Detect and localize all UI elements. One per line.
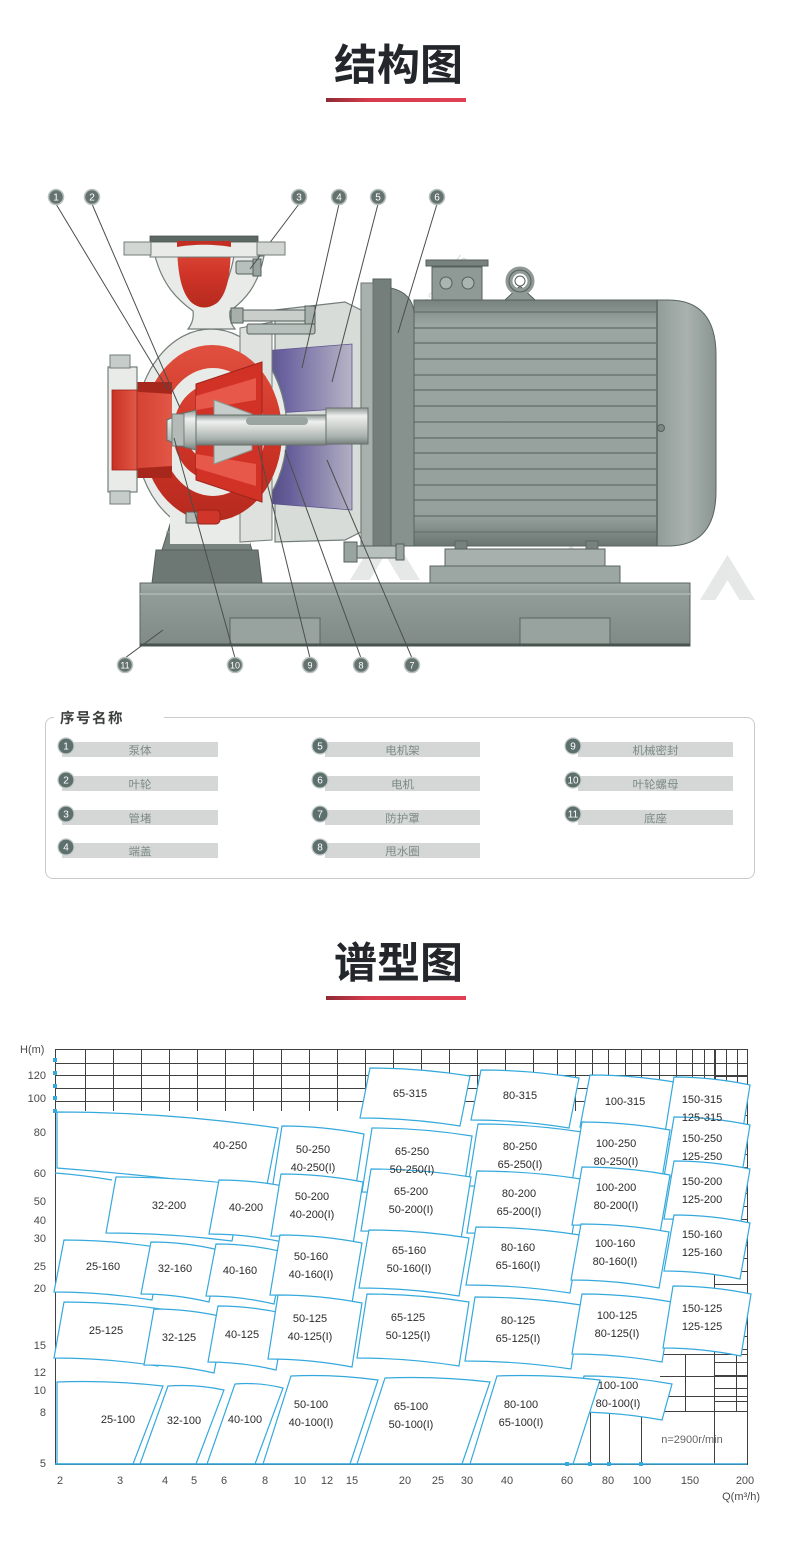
svg-text:2: 2 xyxy=(89,193,95,204)
svg-text:10: 10 xyxy=(34,1385,46,1397)
svg-text:65-125(I): 65-125(I) xyxy=(496,1333,541,1345)
svg-text:60: 60 xyxy=(34,1168,46,1180)
svg-text:40-100: 40-100 xyxy=(228,1414,262,1426)
svg-text:5: 5 xyxy=(191,1475,197,1487)
svg-text:6: 6 xyxy=(434,193,440,204)
svg-text:65-100: 65-100 xyxy=(394,1401,428,1413)
svg-text:80-160: 80-160 xyxy=(501,1242,535,1254)
svg-text:80-200(I): 80-200(I) xyxy=(594,1200,639,1212)
svg-text:2: 2 xyxy=(63,776,69,787)
svg-text:8: 8 xyxy=(262,1475,268,1487)
svg-text:100-125: 100-125 xyxy=(597,1310,637,1322)
svg-text:150: 150 xyxy=(681,1475,699,1487)
svg-text:8: 8 xyxy=(358,661,363,671)
svg-text:25-160: 25-160 xyxy=(86,1261,120,1273)
svg-text:125-160: 125-160 xyxy=(682,1247,722,1259)
svg-text:100-200: 100-200 xyxy=(596,1182,636,1194)
svg-text:125-200: 125-200 xyxy=(682,1194,722,1206)
svg-text:150-160: 150-160 xyxy=(682,1229,722,1241)
svg-text:H(m): H(m) xyxy=(20,1044,44,1056)
svg-text:150-200: 150-200 xyxy=(682,1176,722,1188)
svg-text:50-100(I): 50-100(I) xyxy=(389,1419,434,1431)
svg-text:150-315: 150-315 xyxy=(682,1094,722,1106)
svg-text:125-125: 125-125 xyxy=(682,1321,722,1333)
svg-text:10: 10 xyxy=(230,661,240,671)
svg-text:4: 4 xyxy=(63,843,69,854)
svg-text:25-125: 25-125 xyxy=(89,1325,123,1337)
svg-text:1: 1 xyxy=(63,742,69,753)
svg-text:5: 5 xyxy=(40,1458,46,1470)
svg-text:50-200(I): 50-200(I) xyxy=(389,1204,434,1216)
svg-text:65-160: 65-160 xyxy=(392,1245,426,1257)
svg-text:65-315: 65-315 xyxy=(393,1088,427,1100)
svg-text:150-250: 150-250 xyxy=(682,1133,722,1145)
svg-text:100: 100 xyxy=(28,1093,46,1105)
svg-text:32-200: 32-200 xyxy=(152,1200,186,1212)
svg-text:40-250(I): 40-250(I) xyxy=(291,1162,336,1174)
svg-text:50-200: 50-200 xyxy=(295,1191,329,1203)
svg-text:40-160: 40-160 xyxy=(223,1265,257,1277)
svg-text:3: 3 xyxy=(63,810,69,821)
svg-text:9: 9 xyxy=(570,742,576,753)
svg-text:12: 12 xyxy=(321,1475,333,1487)
svg-text:40: 40 xyxy=(34,1215,46,1227)
svg-text:50-125: 50-125 xyxy=(293,1313,327,1325)
svg-text:65-200: 65-200 xyxy=(394,1186,428,1198)
svg-text:4: 4 xyxy=(336,193,342,204)
svg-text:9: 9 xyxy=(307,661,312,671)
svg-text:2: 2 xyxy=(57,1475,63,1487)
svg-text:50-250: 50-250 xyxy=(296,1144,330,1156)
svg-text:25: 25 xyxy=(432,1475,444,1487)
svg-text:100-160: 100-160 xyxy=(595,1238,635,1250)
svg-text:40-250: 40-250 xyxy=(213,1140,247,1152)
svg-text:120: 120 xyxy=(28,1070,46,1082)
svg-text:7: 7 xyxy=(409,661,414,671)
svg-text:150-125: 150-125 xyxy=(682,1303,722,1315)
svg-text:80: 80 xyxy=(602,1475,614,1487)
svg-text:8: 8 xyxy=(317,843,323,854)
svg-text:12: 12 xyxy=(34,1367,46,1379)
svg-text:40: 40 xyxy=(501,1475,513,1487)
svg-text:40-125: 40-125 xyxy=(225,1329,259,1341)
svg-text:60: 60 xyxy=(561,1475,573,1487)
svg-text:Q(m³/h): Q(m³/h) xyxy=(722,1491,760,1503)
svg-text:3: 3 xyxy=(296,193,302,204)
svg-text:30: 30 xyxy=(34,1233,46,1245)
svg-text:200: 200 xyxy=(736,1475,754,1487)
svg-text:4: 4 xyxy=(162,1475,168,1487)
svg-text:50-250(I): 50-250(I) xyxy=(390,1164,435,1176)
svg-text:11: 11 xyxy=(120,661,129,671)
svg-text:50-125(I): 50-125(I) xyxy=(386,1330,431,1342)
svg-text:32-100: 32-100 xyxy=(167,1415,201,1427)
svg-text:65-200(I): 65-200(I) xyxy=(497,1206,542,1218)
svg-text:6: 6 xyxy=(221,1475,227,1487)
svg-text:80-100: 80-100 xyxy=(504,1399,538,1411)
svg-text:65-250(I): 65-250(I) xyxy=(498,1159,543,1171)
svg-text:50: 50 xyxy=(34,1196,46,1208)
svg-text:80-250: 80-250 xyxy=(503,1141,537,1153)
svg-text:100: 100 xyxy=(633,1475,651,1487)
svg-text:40-125(I): 40-125(I) xyxy=(288,1331,333,1343)
svg-text:80-125(I): 80-125(I) xyxy=(595,1328,640,1340)
svg-text:10: 10 xyxy=(294,1475,306,1487)
svg-text:100-100: 100-100 xyxy=(598,1380,638,1392)
svg-text:40-200: 40-200 xyxy=(229,1202,263,1214)
svg-text:80-100(I): 80-100(I) xyxy=(596,1398,641,1410)
svg-text:10: 10 xyxy=(567,776,579,787)
svg-text:80-200: 80-200 xyxy=(502,1188,536,1200)
svg-text:65-250: 65-250 xyxy=(395,1146,429,1158)
svg-text:20: 20 xyxy=(399,1475,411,1487)
svg-text:65-160(I): 65-160(I) xyxy=(496,1260,541,1272)
svg-text:125-315: 125-315 xyxy=(682,1112,722,1124)
svg-text:32-125: 32-125 xyxy=(162,1332,196,1344)
svg-text:100-250: 100-250 xyxy=(596,1138,636,1150)
svg-text:80-125: 80-125 xyxy=(501,1315,535,1327)
svg-text:11: 11 xyxy=(568,810,579,821)
svg-text:20: 20 xyxy=(34,1283,46,1295)
svg-text:80-160(I): 80-160(I) xyxy=(593,1256,638,1268)
svg-text:15: 15 xyxy=(346,1475,358,1487)
svg-text:25: 25 xyxy=(34,1261,46,1273)
svg-text:32-160: 32-160 xyxy=(158,1263,192,1275)
svg-text:15: 15 xyxy=(34,1340,46,1352)
svg-text:40-200(I): 40-200(I) xyxy=(290,1209,335,1221)
svg-text:5: 5 xyxy=(375,193,381,204)
svg-text:6: 6 xyxy=(317,776,323,787)
svg-text:65-100(I): 65-100(I) xyxy=(499,1417,544,1429)
svg-text:100-315: 100-315 xyxy=(605,1096,645,1108)
svg-text:30: 30 xyxy=(461,1475,473,1487)
svg-text:50-100: 50-100 xyxy=(294,1399,328,1411)
svg-text:40-160(I): 40-160(I) xyxy=(289,1269,334,1281)
svg-text:40-100(I): 40-100(I) xyxy=(289,1417,334,1429)
svg-text:3: 3 xyxy=(117,1475,123,1487)
svg-text:25-100: 25-100 xyxy=(101,1414,135,1426)
svg-text:n=2900r/min: n=2900r/min xyxy=(661,1434,722,1446)
svg-text:7: 7 xyxy=(317,810,323,821)
svg-text:80-315: 80-315 xyxy=(503,1090,537,1102)
svg-text:80-250(I): 80-250(I) xyxy=(594,1156,639,1168)
svg-text:5: 5 xyxy=(317,742,323,753)
svg-text:125-250: 125-250 xyxy=(682,1151,722,1163)
svg-text:80: 80 xyxy=(34,1127,46,1139)
svg-text:8: 8 xyxy=(40,1407,46,1419)
svg-text:1: 1 xyxy=(53,193,59,204)
svg-text:65-125: 65-125 xyxy=(391,1312,425,1324)
svg-text:50-160(I): 50-160(I) xyxy=(387,1263,432,1275)
svg-text:50-160: 50-160 xyxy=(294,1251,328,1263)
